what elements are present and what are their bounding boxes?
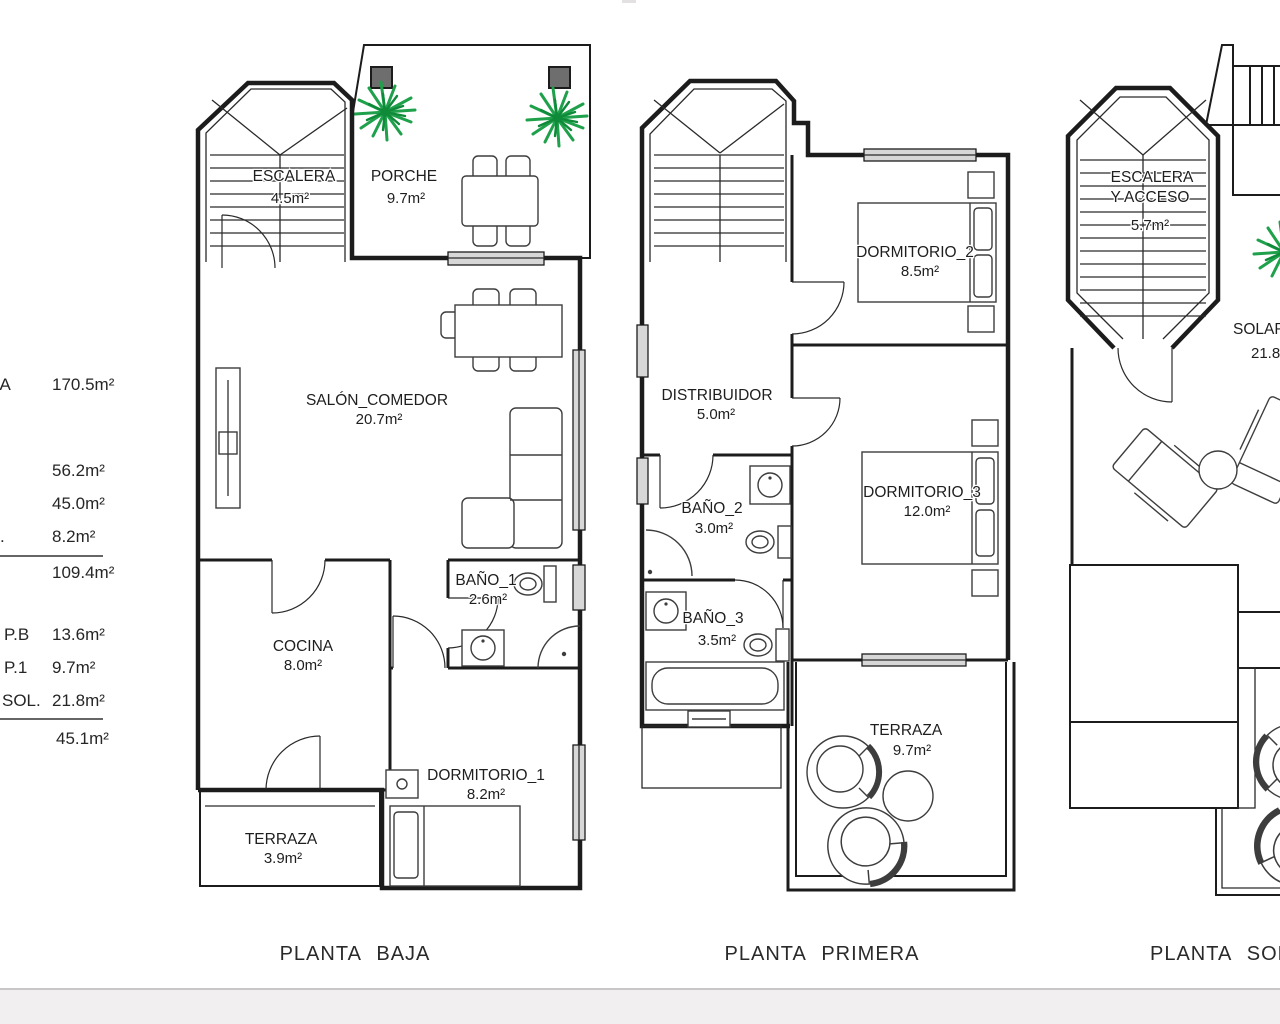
room-area-salon: 20.7m²	[356, 411, 403, 428]
room-label-solarium: SOLARIUM	[1233, 321, 1280, 338]
door-arc	[266, 560, 498, 790]
summary-value: 56.2m²	[52, 461, 105, 480]
round-table	[883, 771, 933, 821]
sink	[750, 466, 790, 504]
nightstand	[968, 306, 994, 332]
room-area-escalera: 4.5m²	[271, 190, 309, 207]
room-area-bano2: 3.0m²	[695, 520, 733, 537]
planta-primera-plan: DORMITORIO_2 8.5m² DISTRIBUIDOR 5.0m² BA…	[637, 81, 1014, 900]
nightstand	[968, 172, 994, 198]
room-area-dormitorio2: 8.5m²	[901, 263, 939, 280]
room-area-solarium: 21.8m²	[1251, 345, 1280, 362]
room-label-escalera: ESCALERA	[253, 168, 336, 185]
room-area-terraza-p1: 9.7m²	[893, 742, 931, 759]
toilet	[514, 566, 556, 602]
summary-total: 109.4m²	[52, 563, 115, 582]
staircase	[650, 89, 786, 262]
pergola-beams	[1233, 66, 1280, 125]
room-label-terraza-pb: TERRAZA	[245, 831, 318, 848]
porch-post	[549, 67, 570, 88]
room-label-dormitorio1: DORMITORIO_1	[427, 767, 545, 784]
room-area-escalera-acceso: 5.7m²	[1131, 217, 1169, 234]
dining-set	[441, 289, 562, 371]
round-chair	[807, 736, 879, 808]
room-label-cocina: COCINA	[273, 638, 334, 655]
summary-value: 13.6m²	[52, 625, 105, 644]
summary-total: 45.1m²	[56, 729, 109, 748]
door-arc	[222, 215, 275, 268]
room-area-cocina: 8.0m²	[284, 657, 322, 674]
palm-plant	[355, 82, 415, 140]
room-label-bano1: BAÑO_1	[455, 572, 516, 589]
plan-title-planta-primera: PLANTA PRIMERA	[725, 943, 920, 965]
round-chair	[1246, 795, 1280, 897]
summary-value: 21.8m²	[52, 691, 105, 710]
planta-baja-plan: ESCALERA 4.5m² PORCHE 9.7m² SALÓN_COMEDO…	[198, 45, 590, 888]
summary-label: P.B	[4, 625, 29, 644]
floor-plan-drawing: LA 170.5m² 56.2m² 45.0m² . 8.2m² 109.4m²…	[0, 0, 1280, 1024]
roof-hatch	[1206, 45, 1233, 125]
lower-roof-void	[642, 726, 781, 788]
shower	[646, 530, 692, 576]
summary-label: .	[0, 527, 5, 546]
sun-lounger	[1226, 393, 1280, 506]
summary-value: 170.5m²	[52, 375, 115, 394]
room-label-escalera-acceso: ESCALERA	[1111, 169, 1194, 186]
room-area-porche: 9.7m²	[387, 190, 425, 207]
room-label-bano3: BAÑO_3	[682, 610, 743, 627]
toilet	[744, 629, 789, 661]
room-label-dormitorio2: DORMITORIO_2	[856, 244, 974, 261]
roof-tiles	[1233, 125, 1280, 195]
room-label-bano2: BAÑO_2	[681, 500, 742, 517]
bathtub	[646, 662, 784, 710]
palm-plant	[527, 88, 587, 146]
room-label-distribuidor: DISTRIBUIDOR	[661, 387, 772, 404]
nightstand	[386, 770, 418, 798]
toilet	[746, 526, 791, 558]
room-label-salon: SALÓN_COMEDOR	[306, 392, 448, 409]
staircase	[1077, 97, 1209, 402]
area-summary-panel: LA 170.5m² 56.2m² 45.0m² . 8.2m² 109.4m²…	[0, 375, 115, 748]
washing-machine	[688, 711, 730, 727]
room-label-terraza-p1: TERRAZA	[870, 722, 943, 739]
bed	[390, 806, 520, 886]
room-label-porche: PORCHE	[371, 168, 437, 185]
palm-plant	[1254, 222, 1280, 280]
porch-dining-set	[462, 156, 538, 246]
round-table	[1199, 451, 1237, 489]
sofa	[462, 408, 562, 548]
summary-label: SOL.	[2, 691, 41, 710]
plan-title-planta-baja: PLANTA BAJA	[280, 943, 431, 965]
room-area-distribuidor: 5.0m²	[697, 406, 735, 423]
room-area-dormitorio1: 8.2m²	[467, 786, 505, 803]
planta-solarium-plan: ESCALERA Y ACCESO 5.7m² SOLARIUM 21.8m²	[1068, 45, 1280, 897]
summary-value: 8.2m²	[52, 527, 96, 546]
summary-label: LA	[0, 375, 11, 394]
sink	[646, 592, 686, 630]
room-area-terraza-pb: 3.9m²	[264, 850, 302, 867]
summary-value: 45.0m²	[52, 494, 105, 513]
scan-artifact	[622, 0, 636, 3]
room-area-dormitorio3: 12.0m²	[904, 503, 951, 520]
nightstand	[972, 420, 998, 446]
nightstand	[972, 570, 998, 596]
shower	[538, 626, 580, 668]
room-area-bano3: 3.5m²	[698, 632, 736, 649]
door-arc	[1118, 348, 1172, 402]
room-area-bano1: 2.6m²	[469, 591, 507, 608]
footer-band	[0, 989, 1280, 1024]
floor-plan-sheet: LA 170.5m² 56.2m² 45.0m² . 8.2m² 109.4m²…	[0, 0, 1280, 1024]
summary-value: 9.7m²	[52, 658, 96, 677]
round-chair	[1256, 724, 1280, 800]
summary-label: P.1	[4, 658, 27, 677]
roof-tiles	[1070, 565, 1280, 808]
room-label-escalera-acceso-line2: Y ACCESO	[1111, 189, 1190, 206]
tv-unit	[216, 368, 240, 508]
plan-title-planta-solarium: PLANTA SOLARIUM	[1150, 943, 1280, 965]
sink	[462, 630, 504, 666]
room-label-dormitorio3: DORMITORIO_3	[863, 484, 981, 501]
